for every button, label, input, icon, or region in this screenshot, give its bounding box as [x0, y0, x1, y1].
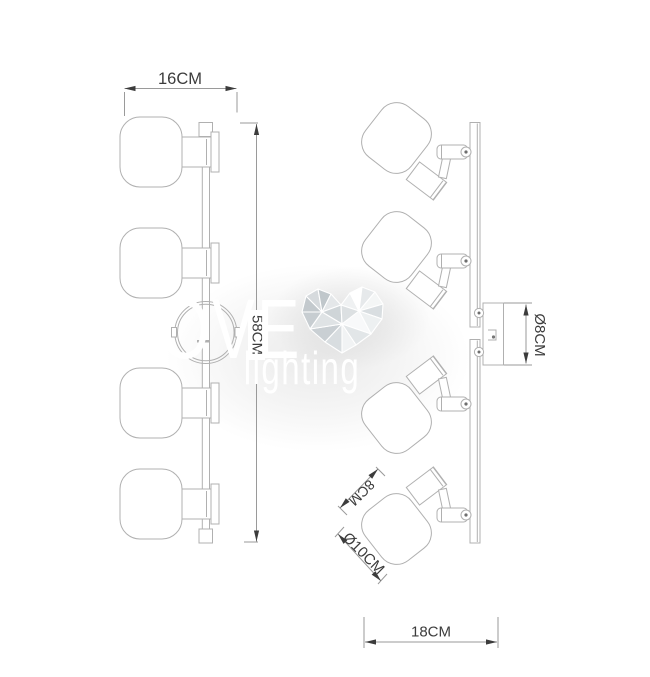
- front-width-label: 16CM: [158, 70, 202, 88]
- fixture-dimension-diagram: 16CM 58CM: [0, 0, 650, 677]
- canopy-diameter-label: Ø8CM: [531, 313, 548, 356]
- side-depth-label: 18CM: [411, 624, 451, 641]
- technical-drawing-page: 16CM 58CM: [0, 0, 650, 677]
